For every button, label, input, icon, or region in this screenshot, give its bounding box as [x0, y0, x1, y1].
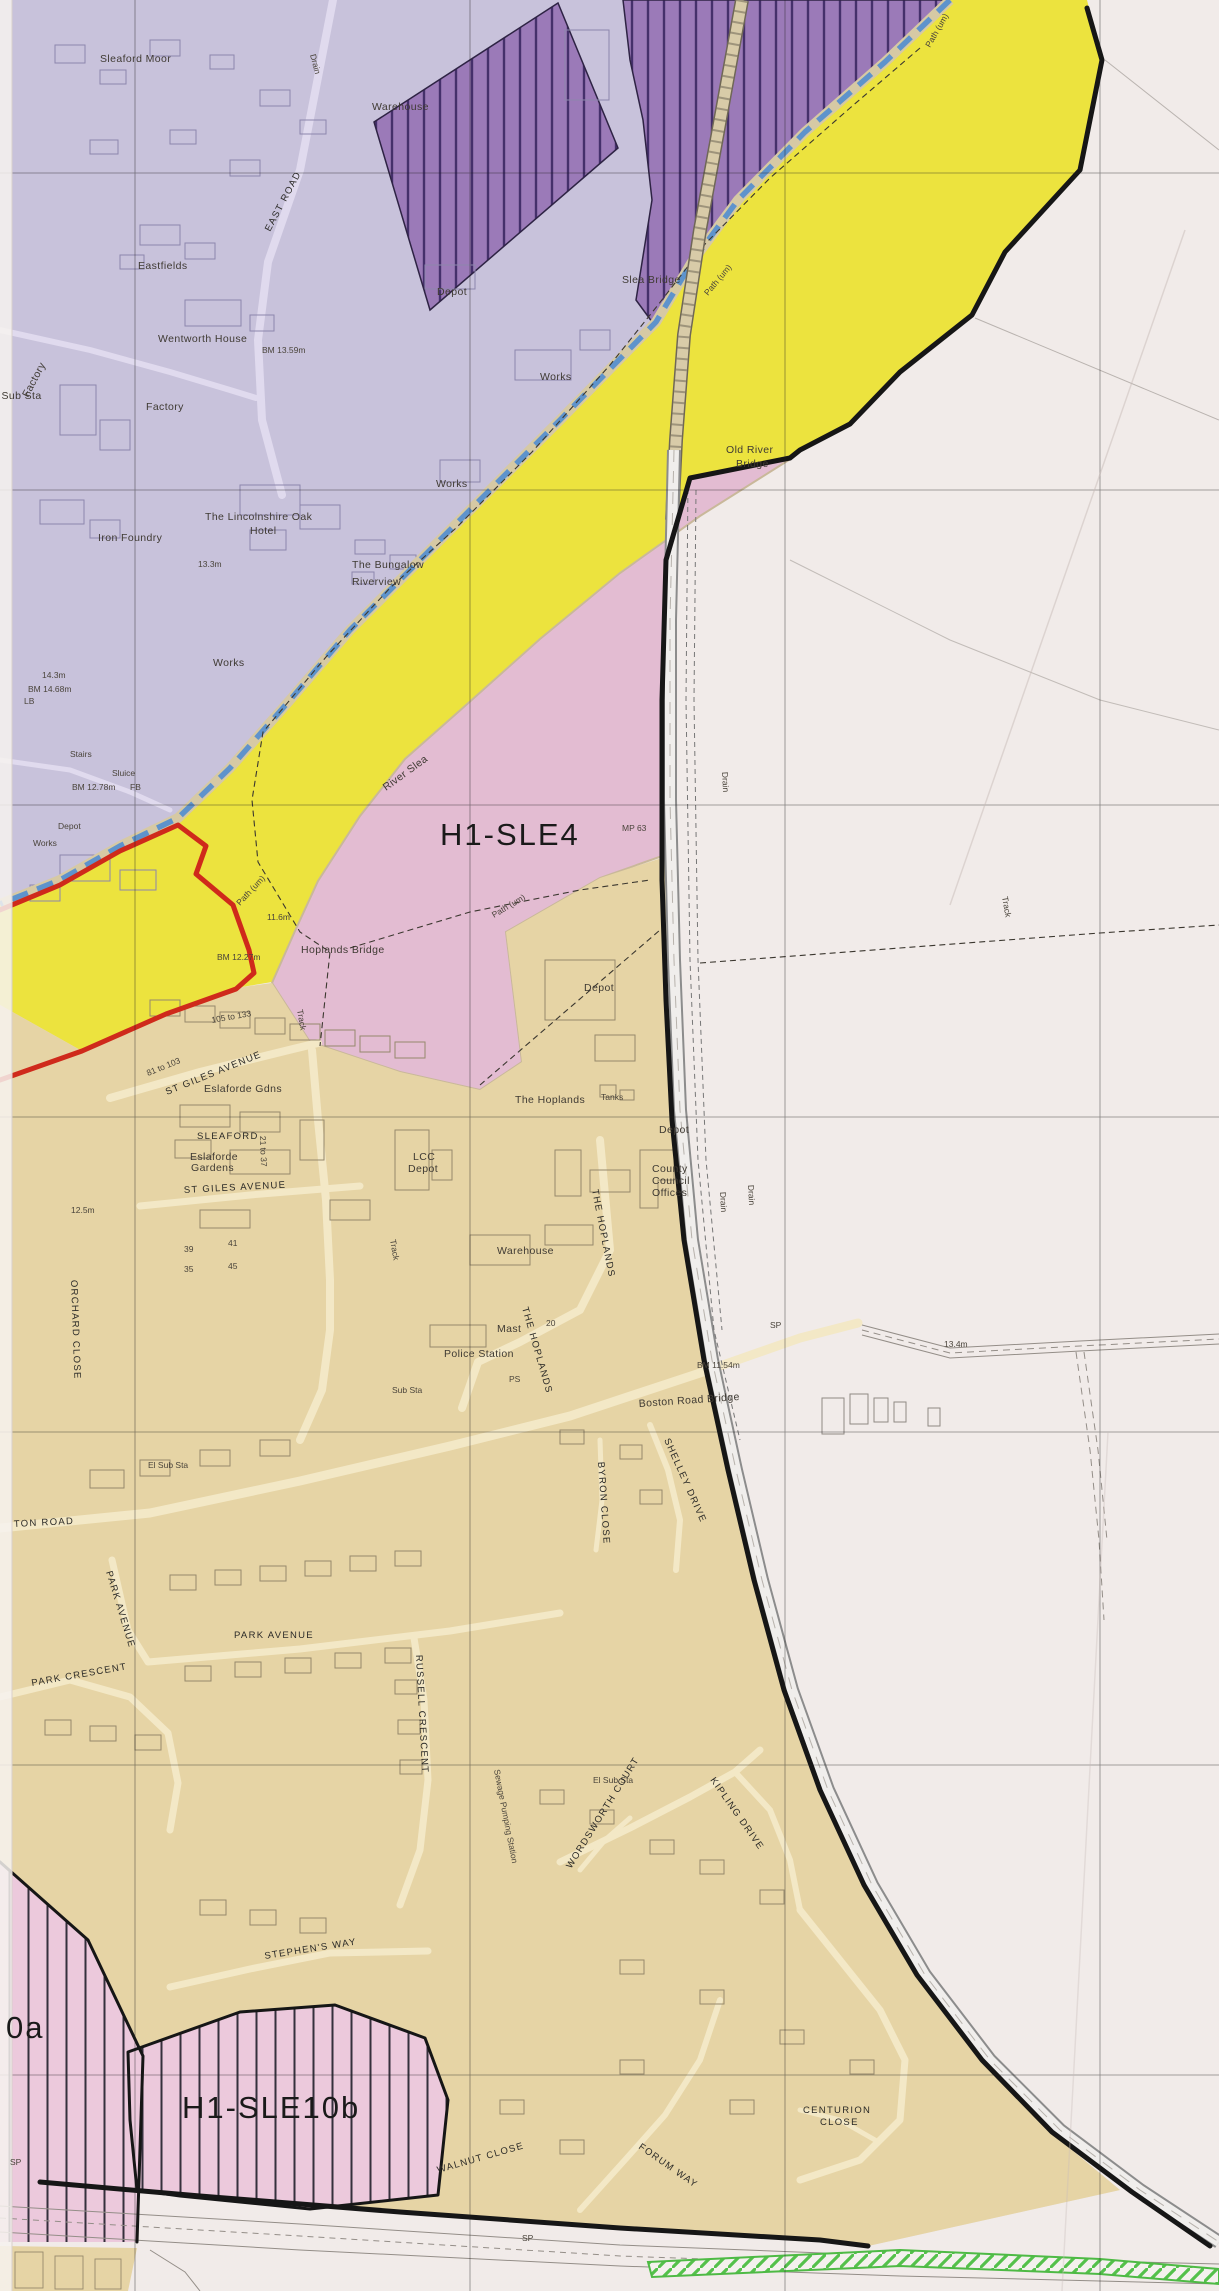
- map-label: The Bungalow: [352, 559, 424, 571]
- map-label: Works: [436, 478, 468, 490]
- street-label: CENTURION: [803, 2105, 871, 2116]
- map-label: FB: [130, 782, 141, 792]
- map-label: Hotel: [250, 525, 277, 537]
- map-label: Gardens: [191, 1162, 234, 1174]
- map-label: Offices: [652, 1187, 687, 1199]
- map-label: BM 11.54m: [697, 1360, 740, 1370]
- map-label: County: [652, 1163, 688, 1175]
- map-label: Slea Bridge: [622, 274, 681, 286]
- map-label: Warehouse: [497, 1245, 554, 1257]
- zone-label: H1-SLE4: [440, 817, 580, 852]
- zone-allotments: [0, 2246, 137, 2291]
- map-label: Riverview: [352, 576, 401, 588]
- map-label: 41: [228, 1238, 238, 1248]
- map-label: 39: [184, 1244, 194, 1254]
- map-label: Sluice: [112, 768, 135, 778]
- map-label: Stairs: [70, 749, 92, 759]
- map-label: 21 to 37: [258, 1136, 269, 1167]
- map-label: 13.3m: [198, 559, 222, 569]
- street-label: PARK AVENUE: [234, 1630, 314, 1641]
- map-label: The Hoplands: [515, 1094, 585, 1106]
- street-label: CLOSE: [820, 2117, 859, 2128]
- map-label: Old River: [726, 444, 773, 456]
- zone-label: H1-SLE10b: [182, 2090, 360, 2125]
- map-label: Works: [540, 371, 572, 383]
- map-label: MP 63: [622, 823, 647, 833]
- zone-label: 0a: [6, 2010, 44, 2045]
- map-label: Depot: [58, 821, 81, 831]
- map-label: Drain: [746, 1185, 757, 1206]
- map-label: Wentworth House: [158, 333, 247, 345]
- map-label: BM 14.68m: [28, 684, 71, 694]
- map-label: Drain: [720, 772, 731, 793]
- map-label: SP: [10, 2157, 22, 2167]
- map-label: Sub Sta: [392, 1385, 423, 1395]
- map-label: Drain: [718, 1192, 729, 1213]
- map-label: Works: [213, 657, 245, 669]
- map-label: Works: [33, 838, 57, 848]
- map-label: Iron Foundry: [98, 532, 163, 544]
- map-label: LCC: [413, 1151, 435, 1163]
- map-label: Bridge: [736, 458, 769, 470]
- map-label: Hoplands Bridge: [301, 944, 385, 956]
- map-label: Police Station: [444, 1348, 514, 1360]
- map-label: 45: [228, 1261, 238, 1271]
- zone-green-corridor: [648, 2250, 1219, 2284]
- map-label: 11.6m: [267, 912, 290, 922]
- map-label: 13.4m: [944, 1339, 968, 1349]
- map-label: Factory: [146, 401, 184, 413]
- map-label: Tanks: [601, 1092, 623, 1102]
- map-label: Depot: [659, 1124, 689, 1136]
- map-label: Warehouse: [372, 101, 429, 113]
- map-label: BM 12.78m: [72, 782, 115, 792]
- map-label: 12.5m: [71, 1205, 95, 1215]
- map-label: El Sub Sta: [0, 390, 42, 402]
- scanned-map-page: H1-SLE4H1-SLE10b0aSleaford MoorWarehouse…: [0, 0, 1219, 2291]
- map-label: PS: [509, 1374, 521, 1384]
- map-label: Sleaford Moor: [100, 53, 171, 65]
- map-label: The Lincolnshire Oak: [205, 511, 313, 523]
- map-label: Track: [1000, 896, 1014, 919]
- map-label: Depot: [584, 982, 614, 994]
- map-label: 35: [184, 1264, 194, 1274]
- map-label: BM 12.27m: [217, 952, 260, 962]
- countryside-buildings: [822, 1394, 940, 1434]
- proposals-map: H1-SLE4H1-SLE10b0aSleaford MoorWarehouse…: [0, 0, 1219, 2291]
- map-label: Depot: [437, 286, 467, 298]
- map-label: BM 13.59m: [262, 345, 305, 355]
- map-label: Depot: [408, 1163, 438, 1175]
- map-label: Mast: [497, 1323, 521, 1335]
- street-label: SLEAFORD: [197, 1131, 259, 1142]
- map-label: 20: [546, 1318, 556, 1328]
- map-label: SP: [770, 1320, 782, 1330]
- map-label: Eastfields: [138, 260, 188, 272]
- map-label: 14.3m: [42, 670, 66, 680]
- map-label: Eslaforde Gdns: [204, 1083, 282, 1095]
- map-label: El Sub Sta: [148, 1460, 188, 1470]
- map-label: LB: [24, 696, 35, 706]
- map-label: SP: [522, 2233, 534, 2243]
- map-label: Council: [652, 1175, 690, 1187]
